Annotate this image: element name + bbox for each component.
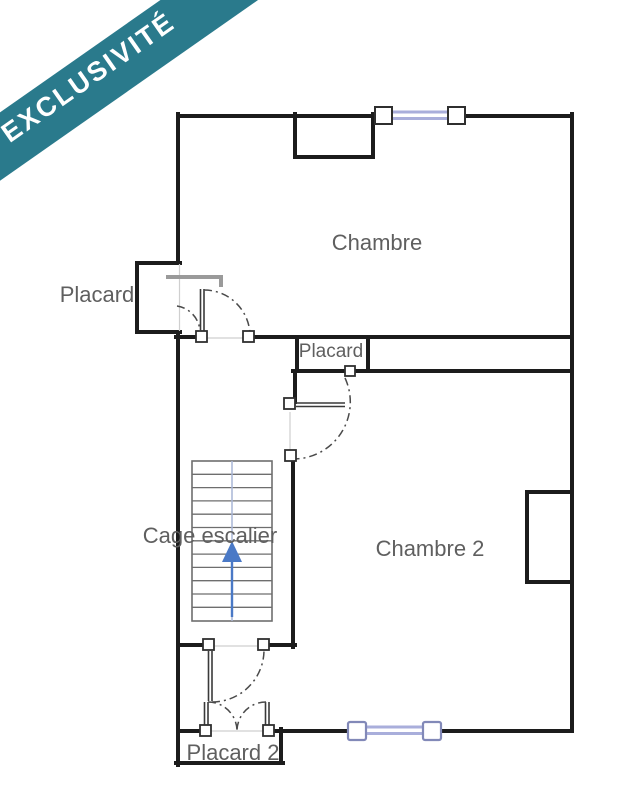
inner-walls: [137, 114, 572, 763]
room-label-chambre: Chambre: [332, 230, 422, 255]
banner-label: EXCLUSIVITÉ: [0, 6, 181, 149]
window-frame-post: [448, 107, 465, 124]
door-arc-placard2-left: [208, 702, 237, 731]
door-post: [200, 725, 211, 736]
door-post: [203, 639, 214, 650]
room-label-placard-2: Placard 2: [187, 740, 280, 765]
door-post: [284, 398, 295, 409]
door-post: [263, 725, 274, 736]
exclusivity-banner: EXCLUSIVITÉ: [0, 0, 259, 206]
door-arc-placard2-right: [237, 702, 266, 731]
door-leaf-chambre: [201, 289, 205, 332]
window-frame-post: [423, 722, 441, 740]
door-leaf-lower-hall: [209, 651, 213, 701]
door-leaf-placard2-right: [266, 702, 270, 728]
door-leaf-hall: [296, 403, 345, 407]
window-frame-post: [375, 107, 392, 124]
door-post: [258, 639, 269, 650]
window-top: [375, 107, 465, 124]
outer-walls: [178, 114, 572, 765]
room-label-cage-escalier: Cage escalier: [143, 523, 278, 548]
floor-plan-canvas: Chambre Placard Placard Cage escalier Ch…: [0, 0, 642, 800]
door-post: [243, 331, 254, 342]
door-post: [196, 331, 207, 342]
placard-open-door: [166, 277, 221, 287]
door-arc-hall: [293, 378, 350, 459]
room-label-placard-middle: Placard: [299, 341, 363, 362]
door-arc-lower-hall: [212, 650, 264, 702]
door-post: [345, 366, 355, 376]
door-post: [285, 450, 296, 461]
room-label-chambre-2: Chambre 2: [376, 536, 485, 561]
door-arc-placard: [177, 306, 200, 332]
door-arc-chambre: [204, 290, 250, 336]
window-frame-post: [348, 722, 366, 740]
chambre2-niche: [527, 492, 570, 582]
door-leaf-placard2-left: [205, 702, 209, 728]
chimney-breast: [295, 114, 373, 157]
placard-left-box: [137, 263, 180, 332]
room-label-placard-left: Placard: [60, 282, 135, 307]
window-bottom: [348, 722, 441, 740]
